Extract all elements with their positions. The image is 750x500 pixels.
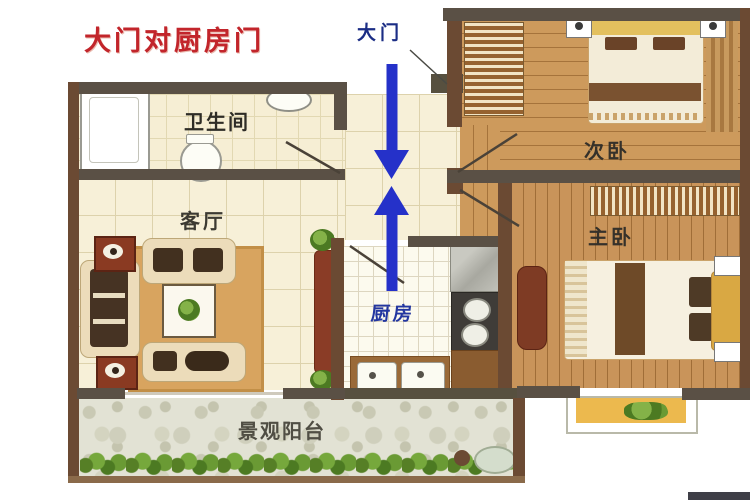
bathroom-label: 卫生间: [184, 112, 250, 132]
arrow-down-icon: [374, 64, 409, 179]
door-swing-line: [458, 134, 517, 172]
annotation-title: 大门对厨房门: [84, 28, 264, 55]
main-door-label: 大门: [357, 24, 403, 43]
watermark-bar: [688, 492, 750, 500]
plan-lines: [0, 0, 750, 500]
door-swing-line: [460, 190, 519, 226]
kitchen-label: 厨房: [370, 305, 416, 324]
floor-plan: 大门对厨房门 大门 卫生间 客厅 厨房 次卧 主卧 景观阳台: [0, 0, 750, 500]
arrow-up-icon: [374, 186, 409, 291]
balcony-label: 景观阳台: [238, 421, 326, 441]
master-bedroom-label: 主卧: [588, 227, 634, 247]
living-room-label: 客厅: [180, 211, 226, 231]
main-door-leader-line: [410, 50, 447, 84]
secondary-bedroom-label: 次卧: [584, 141, 630, 161]
door-swing-line: [286, 142, 340, 173]
